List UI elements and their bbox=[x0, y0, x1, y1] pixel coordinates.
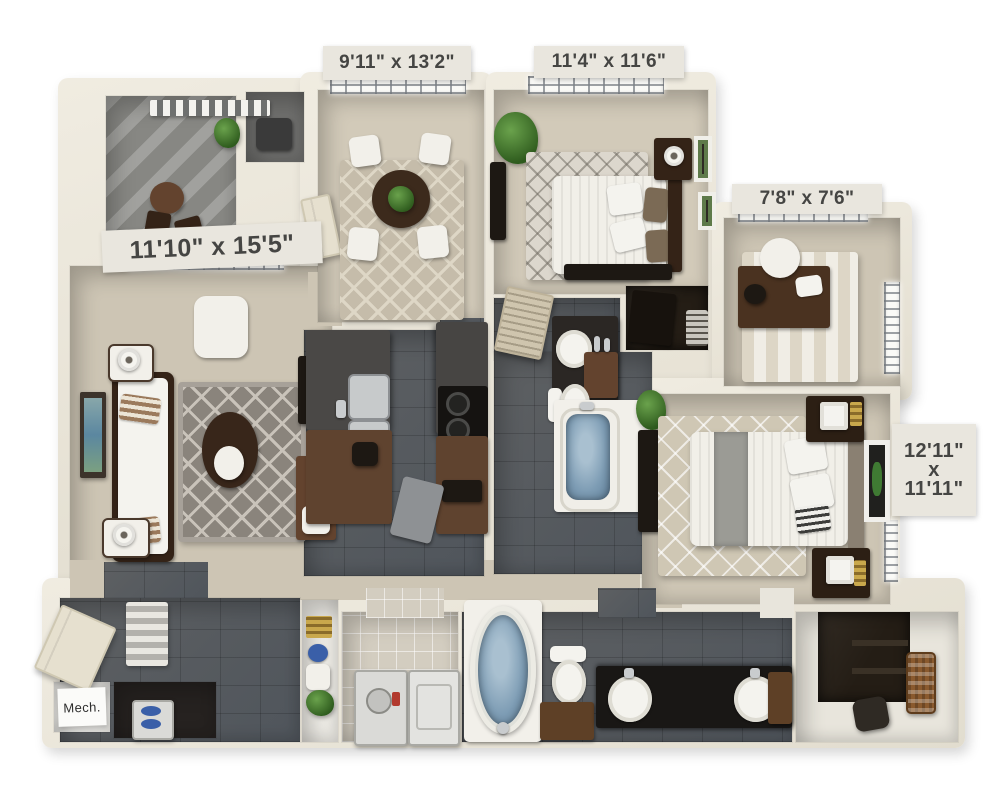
bathtub2-faucet bbox=[497, 722, 509, 734]
master-dresser-left bbox=[638, 430, 660, 532]
dining-chair-1 bbox=[348, 134, 382, 168]
master-wall-art-leaf bbox=[872, 462, 882, 496]
dryer-door bbox=[416, 684, 452, 730]
kitchen-faucet bbox=[336, 400, 346, 418]
master-books-south bbox=[854, 560, 866, 586]
bathroom1-faucet bbox=[594, 336, 600, 352]
master-lamp-south bbox=[826, 556, 854, 584]
water-heater-label-2 bbox=[141, 719, 161, 729]
stove-burner-1 bbox=[446, 392, 470, 416]
kitchen-appliance-right bbox=[442, 480, 482, 502]
vanity2-sink-left bbox=[608, 676, 652, 722]
pantry-vase bbox=[306, 664, 330, 690]
bathtub1-water bbox=[566, 414, 610, 500]
washer-button-red bbox=[392, 692, 400, 706]
bedroom2-pillow-1 bbox=[606, 182, 644, 216]
dining-centerpiece-plant bbox=[388, 186, 414, 212]
master-books-north bbox=[850, 402, 862, 426]
closet1-clothes bbox=[627, 290, 676, 346]
closet2-basket bbox=[906, 652, 936, 714]
dimension-label-bedroom2: 11'4" x 11'6" bbox=[534, 46, 684, 78]
armchair bbox=[194, 296, 248, 358]
water-heater-label-1 bbox=[141, 706, 161, 716]
closet1-wire-basket bbox=[686, 310, 708, 346]
dining-chair-4 bbox=[416, 225, 449, 260]
bathroom2-door-opening bbox=[598, 588, 656, 618]
lamp-south bbox=[113, 524, 135, 546]
mech-room-label: Mech. bbox=[57, 687, 106, 727]
toilet2-bowl bbox=[552, 660, 586, 704]
den-window-right bbox=[884, 282, 900, 374]
master-headboard bbox=[848, 428, 864, 550]
wall-art-living-canvas bbox=[84, 398, 102, 472]
vanity2-end-cabinet bbox=[768, 672, 792, 724]
bedroom2-dresser-left bbox=[490, 162, 506, 240]
kitchen-sink-basin-1 bbox=[348, 374, 390, 420]
closet2-door-opening bbox=[760, 588, 794, 618]
bathroom1-faucet-2 bbox=[604, 338, 610, 352]
balcony-railing bbox=[150, 100, 270, 116]
bedroom2-lamp bbox=[664, 146, 684, 166]
bedroom2-dresser-bottom bbox=[564, 264, 672, 280]
closet2-hamper bbox=[851, 695, 890, 732]
vanity2-faucet-left bbox=[624, 668, 634, 678]
coffee-table-tray bbox=[214, 446, 244, 480]
sofa-pillow-1 bbox=[118, 393, 161, 424]
master-dim-line2: x bbox=[928, 461, 940, 480]
den-desk-papers bbox=[795, 274, 824, 297]
den-desk-flowers bbox=[744, 284, 766, 304]
balcony-grill bbox=[256, 118, 292, 150]
pantry-plant bbox=[306, 690, 334, 716]
den-chair bbox=[760, 238, 800, 278]
pantry-item-blue bbox=[308, 644, 328, 662]
bathroom1-cabinet bbox=[584, 352, 618, 398]
bedroom2-window bbox=[528, 76, 664, 94]
washer-dial bbox=[366, 688, 392, 714]
laundry-door-opening bbox=[366, 588, 444, 618]
dining-chair-3 bbox=[346, 227, 379, 262]
master-lamp-north bbox=[820, 402, 848, 430]
master-bed-runner bbox=[714, 432, 748, 546]
dimension-label-den: 7'8" x 7'6" bbox=[732, 184, 882, 214]
master-dim-line1: 12'11" bbox=[904, 442, 964, 461]
master-window-right bbox=[884, 520, 898, 582]
closet2-shelf-2 bbox=[852, 668, 908, 674]
bedroom2-cushion-1 bbox=[642, 187, 669, 223]
kitchen-cabinet-left bbox=[306, 430, 392, 524]
vanity2-faucet-right bbox=[750, 668, 760, 678]
bathtub1-faucet bbox=[580, 402, 594, 410]
dimension-label-dining: 9'11" x 13'2" bbox=[323, 46, 471, 80]
bedroom2-wall-art-1 bbox=[694, 136, 712, 182]
master-accent-pillow bbox=[794, 504, 831, 534]
bedroom2-wall-art-2 bbox=[698, 192, 716, 230]
closet2-interior bbox=[818, 612, 910, 702]
closet2-shelf bbox=[852, 640, 908, 646]
balcony-bistro-table bbox=[150, 182, 184, 214]
lamp-north bbox=[118, 349, 140, 371]
entry-opening-floor bbox=[104, 562, 208, 600]
bathroom2-cabinet bbox=[540, 702, 594, 740]
kitchen-coffee-maker bbox=[352, 442, 378, 466]
entry-runner bbox=[126, 602, 168, 666]
bathtub2-water bbox=[478, 615, 528, 725]
floor-plan: 9'11" x 13'2" 11'4" x 11'6" 7'8" x 7'6" … bbox=[0, 0, 1000, 800]
bedroom2-headboard bbox=[668, 178, 682, 272]
pantry-items-yellow bbox=[306, 616, 332, 638]
master-dim-line3: 11'11" bbox=[905, 480, 964, 499]
dimension-label-master: 12'11" x 11'11" bbox=[892, 424, 976, 516]
balcony-plant bbox=[214, 118, 240, 148]
dining-chair-2 bbox=[418, 132, 452, 166]
